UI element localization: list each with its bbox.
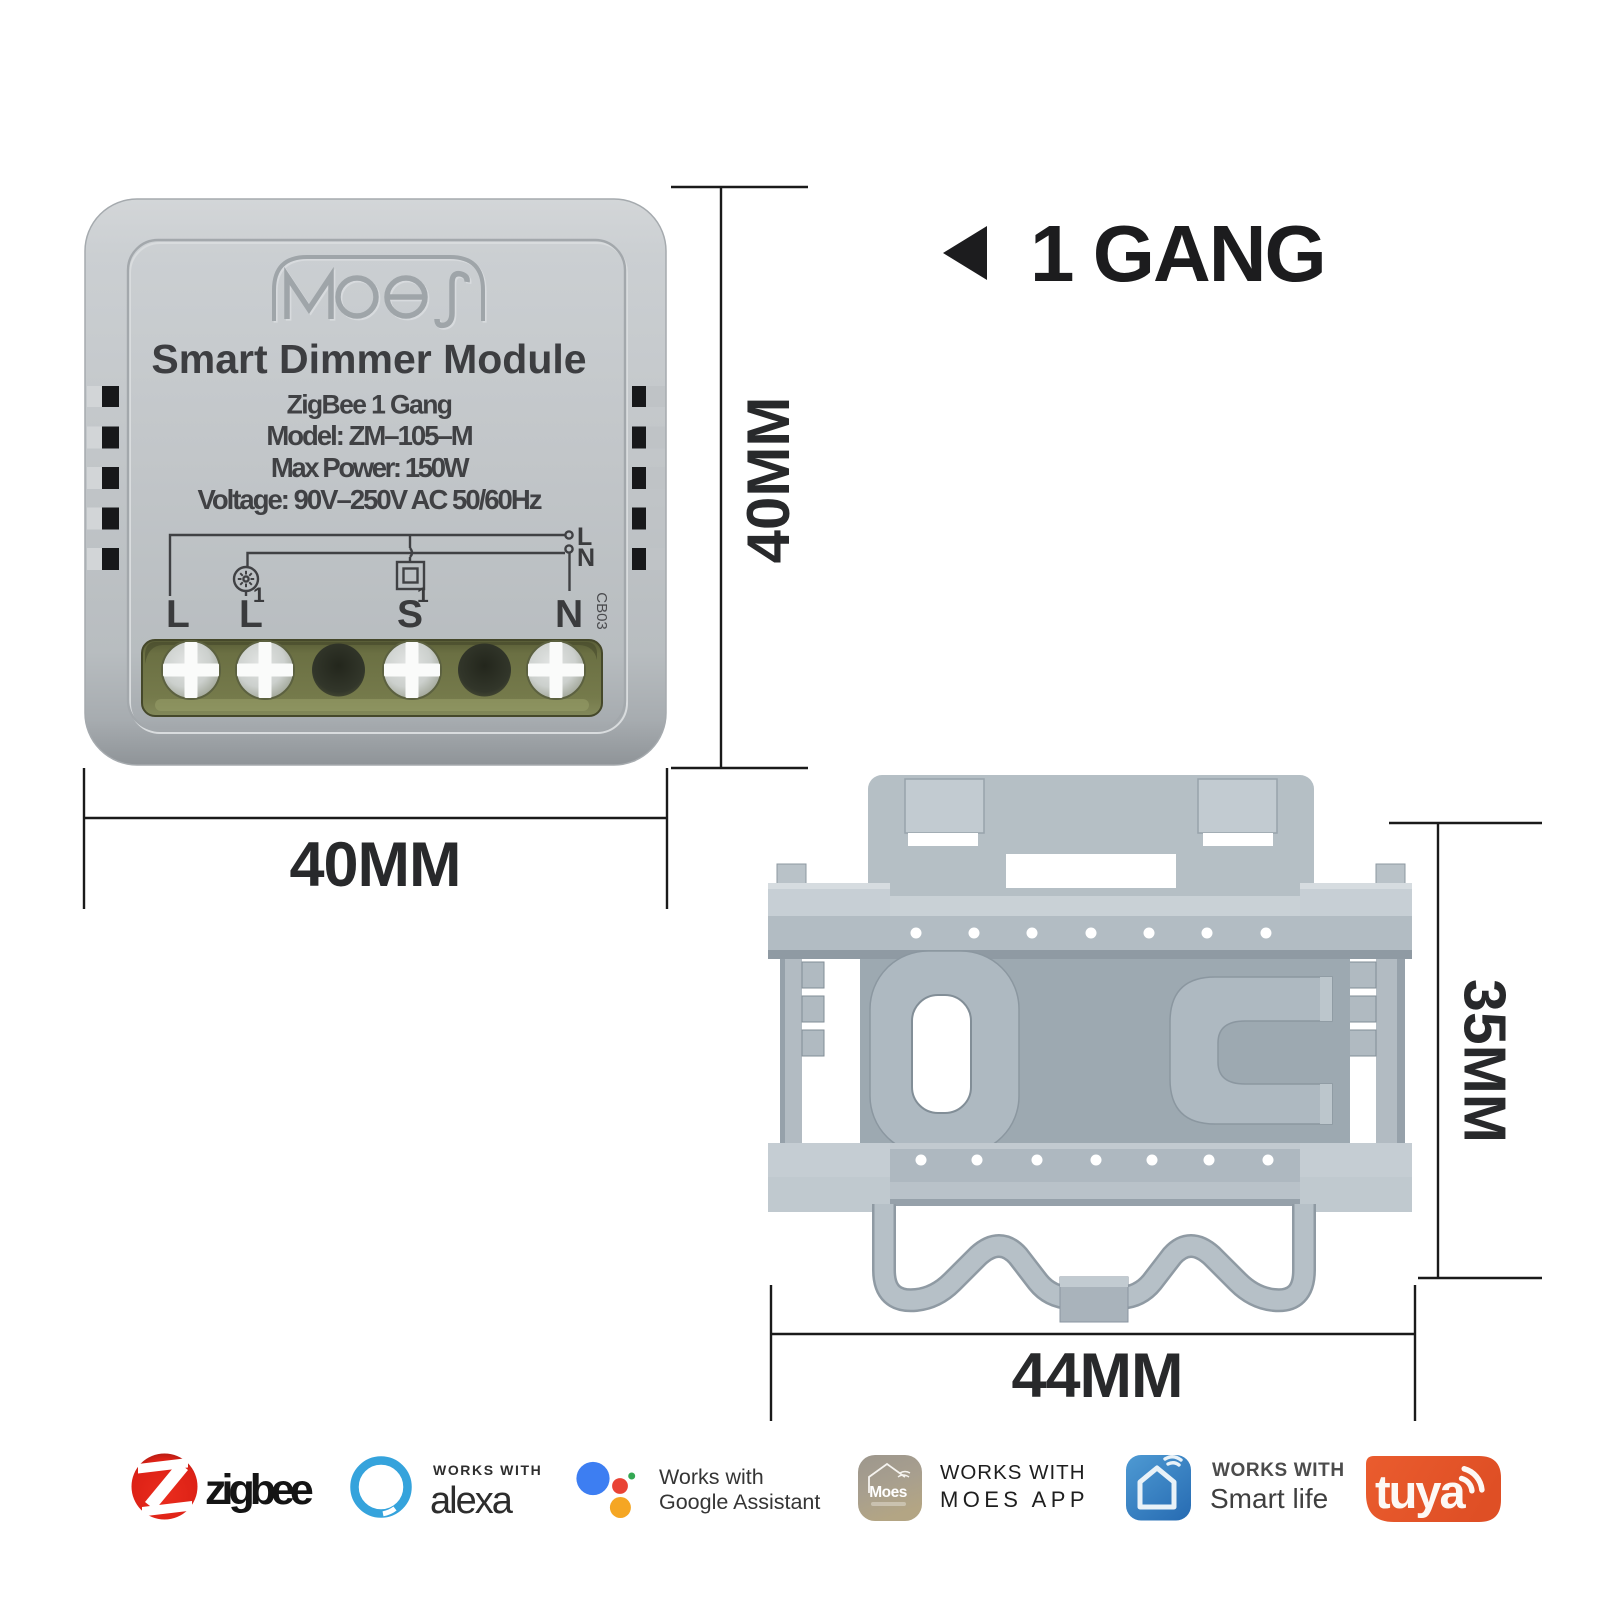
svg-text:N: N [555, 593, 583, 636]
svg-text:1: 1 [253, 584, 265, 607]
svg-text:44MM: 44MM [1011, 1341, 1182, 1411]
svg-text:35MM: 35MM [1451, 979, 1517, 1143]
svg-text:Works with: Works with [659, 1465, 764, 1489]
svg-text:Model: ZM–105–M: Model: ZM–105–M [266, 420, 472, 451]
svg-text:MOES APP: MOES APP [940, 1487, 1089, 1512]
svg-text:Moes: Moes [869, 1484, 907, 1501]
svg-text:Smart life: Smart life [1210, 1483, 1328, 1514]
svg-text:WORKS WITH: WORKS WITH [940, 1461, 1086, 1484]
svg-text:1 GANG: 1 GANG [1030, 209, 1325, 298]
svg-text:alexa: alexa [430, 1480, 514, 1522]
svg-text:L: L [166, 593, 190, 636]
svg-text:Max Power: 150W: Max Power: 150W [271, 452, 470, 483]
svg-text:ZigBee 1 Gang: ZigBee 1 Gang [287, 390, 452, 420]
svg-text:CB03: CB03 [593, 592, 610, 630]
svg-text:40MM: 40MM [289, 830, 460, 900]
svg-text:WORKS WITH: WORKS WITH [433, 1462, 542, 1478]
svg-text:Smart Dimmer Module: Smart Dimmer Module [151, 336, 586, 382]
svg-text:Google Assistant: Google Assistant [659, 1490, 820, 1514]
svg-text:Voltage: 90V–250V AC 50/60Hz: Voltage: 90V–250V AC 50/60Hz [198, 484, 542, 515]
svg-text:40MM: 40MM [735, 397, 802, 564]
svg-text:tuya: tuya [1375, 1465, 1467, 1518]
svg-text:N: N [577, 544, 595, 572]
svg-text:1: 1 [417, 584, 429, 607]
svg-text:WORKS WITH: WORKS WITH [1212, 1460, 1345, 1481]
svg-text:zigbee: zigbee [205, 1466, 313, 1514]
